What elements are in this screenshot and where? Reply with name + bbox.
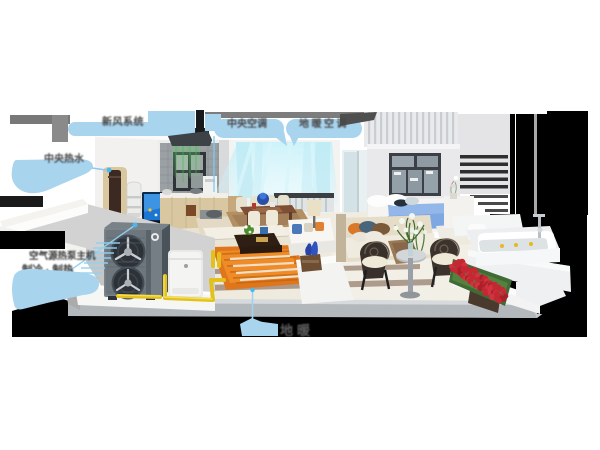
- svg-text:新风系统: 新风系统: [102, 115, 144, 128]
- svg-text:空气源热泵主机: 空气源热泵主机: [29, 250, 96, 262]
- svg-text:地暖: 地暖: [280, 323, 314, 338]
- svg-text:中央热水: 中央热水: [44, 152, 85, 165]
- svg-text:地暖空调: 地暖空调: [299, 117, 349, 130]
- svg-text:中央空调: 中央空调: [227, 117, 267, 130]
